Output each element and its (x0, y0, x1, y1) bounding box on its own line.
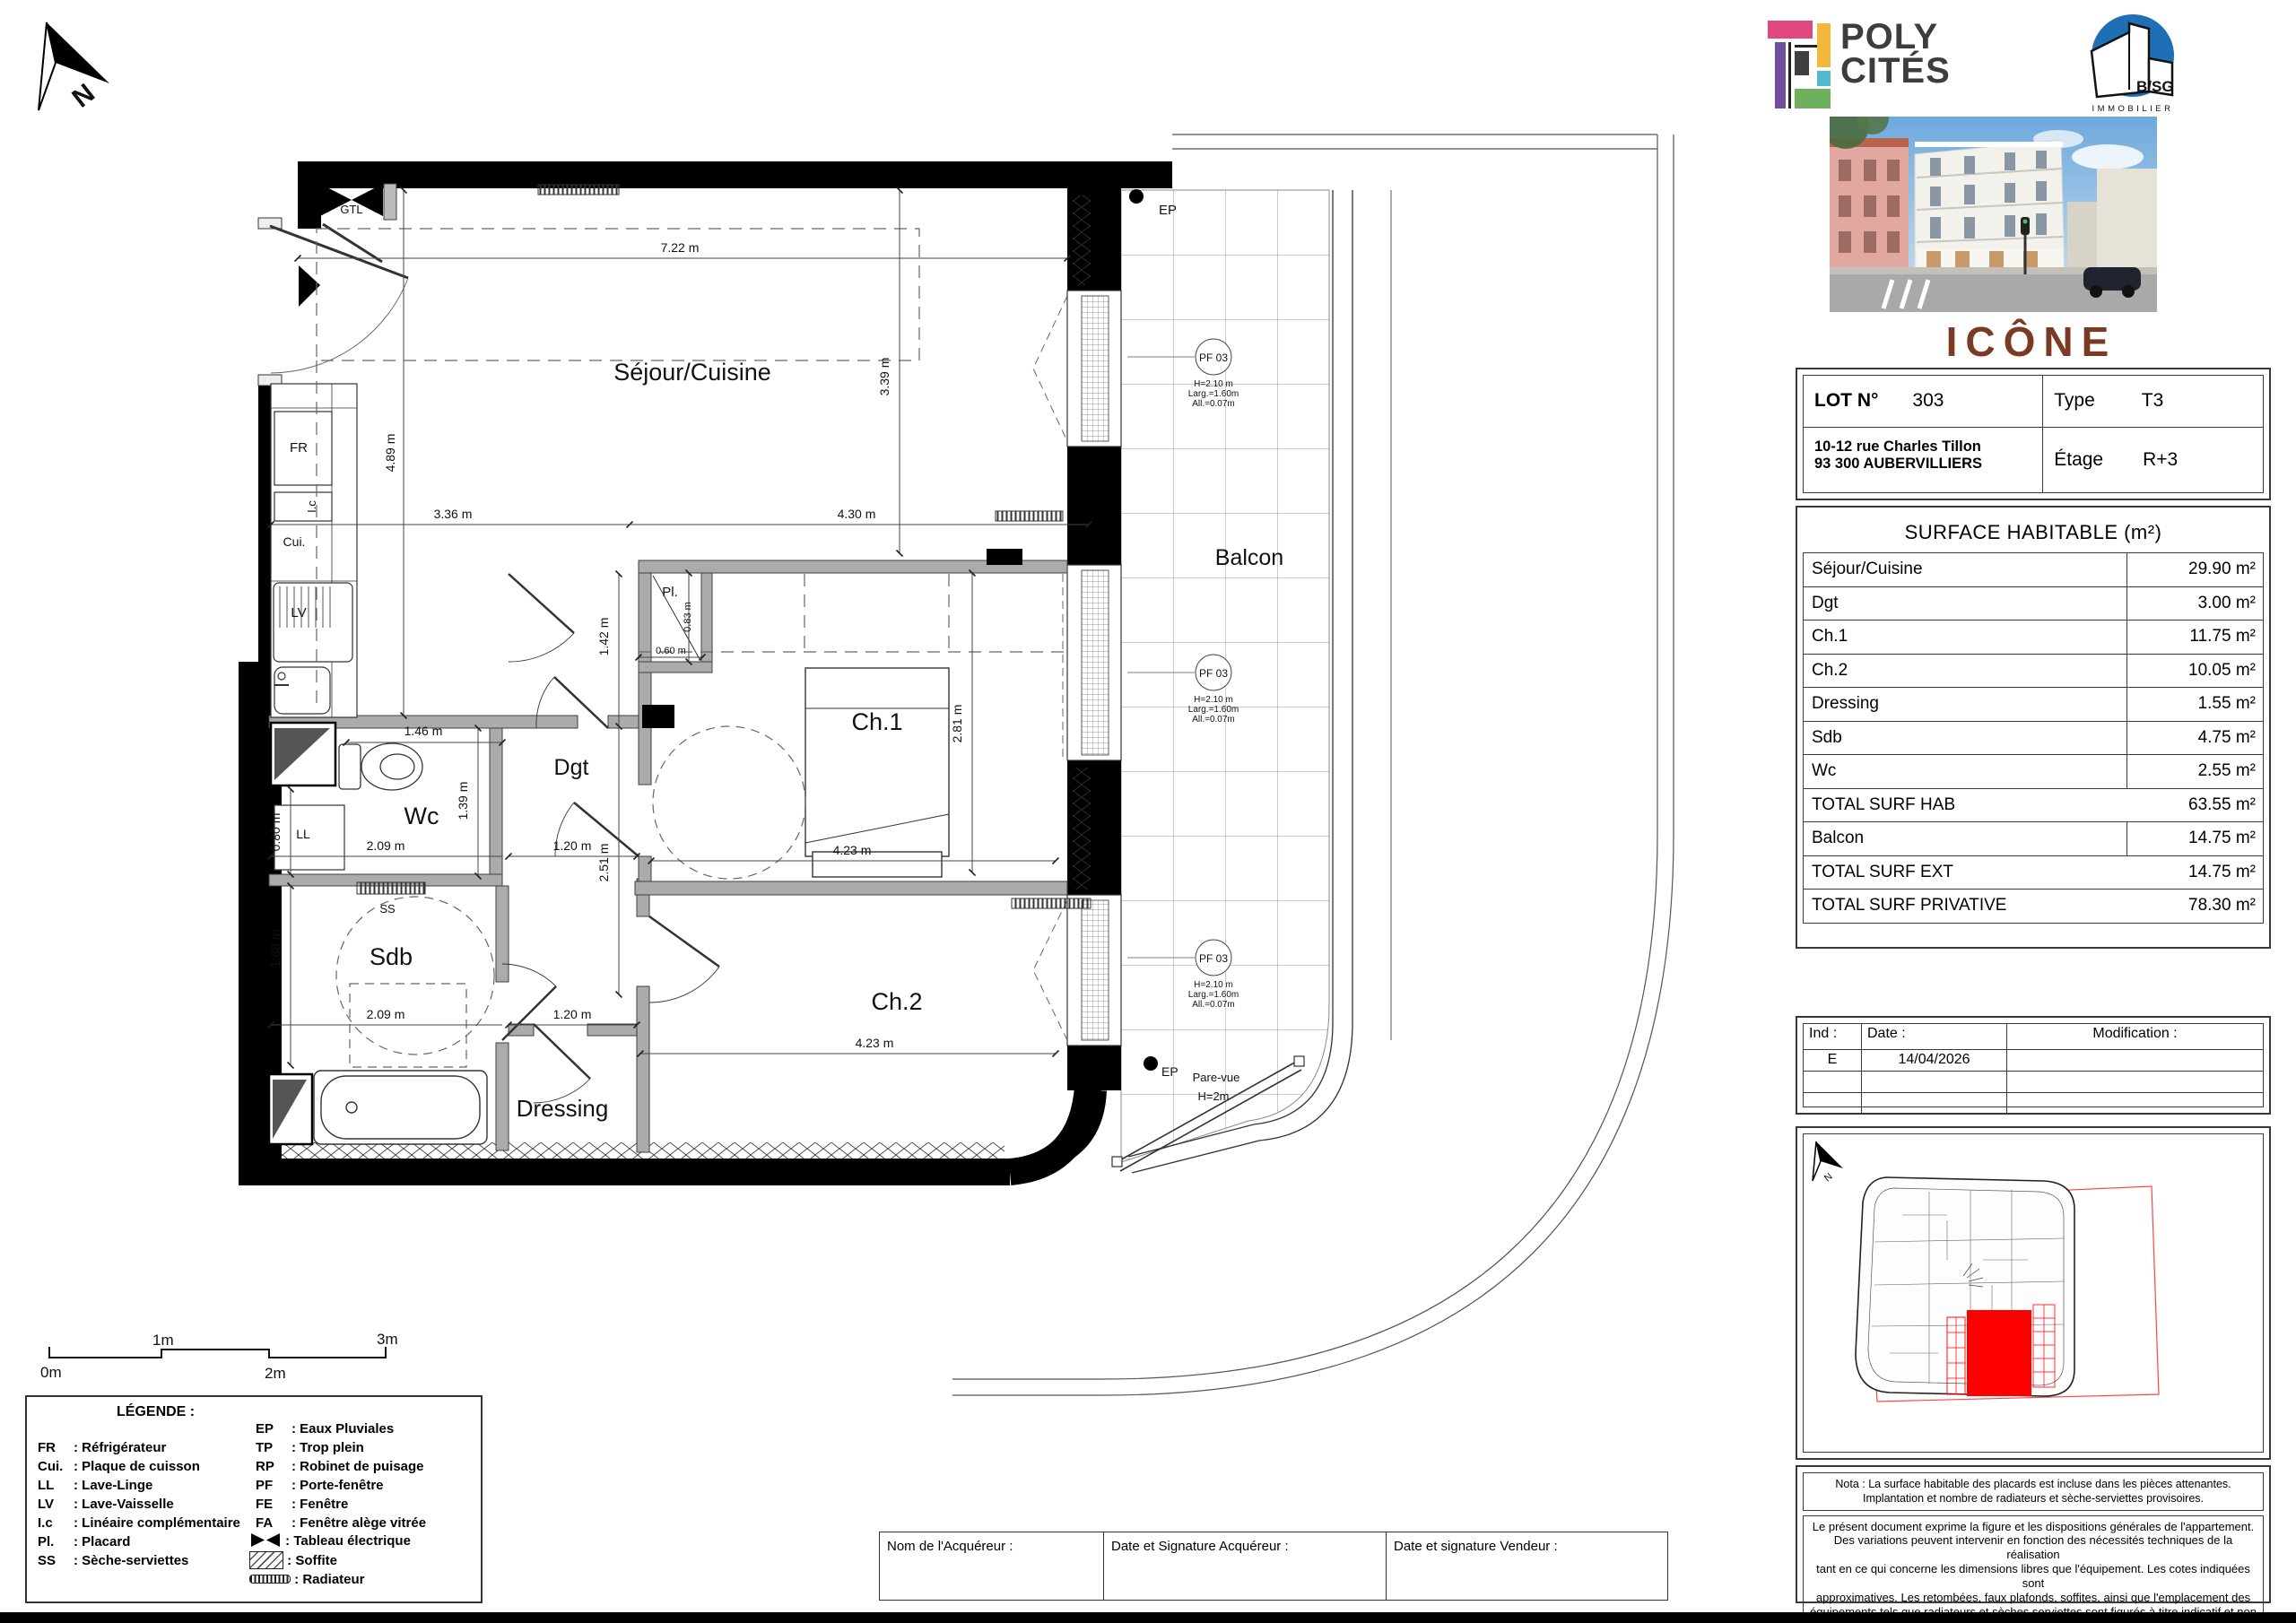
legend-item: RP: Robinet de puisage (256, 1459, 424, 1474)
lot-floor-cell: Étage R+3 (2042, 427, 2263, 493)
svg-text:Larg.=1.60m: Larg.=1.60m (1188, 990, 1239, 1000)
svg-text:4.23 m: 4.23 m (856, 1036, 894, 1050)
room-label-dressing: Dressing (517, 1095, 609, 1122)
svg-text:1.39 m: 1.39 m (456, 782, 470, 820)
legend-item: SS: Sèche-serviettes (38, 1553, 188, 1568)
svg-text:LV: LV (291, 605, 306, 621)
svg-text:3.39 m: 3.39 m (877, 358, 891, 396)
ep-marker-bottom (1144, 1056, 1158, 1071)
legend-item: : Tableau électrique (249, 1532, 411, 1549)
room-label-dgt: Dgt (554, 755, 589, 780)
ep-label-bottom: EP (1161, 1064, 1178, 1079)
site-plan-drawing: N (1804, 1134, 2264, 1443)
revision-cell (2006, 1049, 2263, 1071)
revision-cell (1861, 1092, 2006, 1114)
revision-cell: 14/04/2026 (1861, 1049, 2006, 1071)
legend-title: LÉGENDE : (117, 1404, 195, 1420)
bsg-logo-icon: B/SG IMMOBILIER (2077, 9, 2194, 118)
svg-text:PF 03: PF 03 (1199, 352, 1228, 364)
lot-number-cell: LOT N° 303 (1804, 376, 2042, 427)
revision-cell (1804, 1071, 1861, 1092)
surface-row: Dgt3.00 m² (1804, 586, 2263, 621)
svg-text:2.09 m: 2.09 m (367, 1007, 405, 1021)
legend-item: : Soffite (249, 1551, 337, 1569)
nota-text-2: Le présent document exprime la figure et… (1803, 1515, 2264, 1623)
revision-cell (1861, 1071, 2006, 1092)
surface-row: Wc2.55 m² (1804, 754, 2263, 788)
site-north-arrow-icon: N (1813, 1141, 1843, 1185)
balcony (952, 135, 1674, 1395)
svg-text:1m: 1m (152, 1332, 174, 1349)
soffit-hatch-icon (249, 1551, 283, 1569)
exterior-walls (239, 161, 1172, 1185)
svg-text:1.68 m: 1.68 m (268, 930, 283, 968)
soffit-dashed-lines (317, 229, 1065, 1067)
revision-header: Ind : (1804, 1024, 1861, 1049)
surface-row-total: TOTAL SURF HAB63.55 m² (1804, 788, 2263, 822)
bed (805, 668, 949, 877)
surface-row: Ch.210.05 m² (1804, 654, 2263, 688)
svg-text:Cui.: Cui. (283, 534, 306, 549)
lot-address-cell: 10-12 rue Charles Tillon 93 300 AUBERVIL… (1804, 427, 2042, 493)
svg-text:3.36 m: 3.36 m (434, 507, 473, 521)
svg-text:Larg.=1.60m: Larg.=1.60m (1188, 389, 1239, 399)
revision-header: Date : (1861, 1024, 2006, 1049)
svg-text:IMMOBILIER: IMMOBILIER (2092, 104, 2174, 114)
legend-item: FE: Fenêtre (256, 1497, 348, 1512)
buyer-signature-cell: Date et Signature Acquéreur : (1104, 1532, 1387, 1600)
legend-item: FA: Fenêtre alège vitrée (256, 1515, 426, 1531)
svg-text:All.=0.07m: All.=0.07m (1192, 399, 1235, 409)
svg-text:Pare-vue: Pare-vue (1193, 1071, 1240, 1084)
legend-item: FR: Réfrigérateur (38, 1440, 166, 1455)
svg-text:1.46 m: 1.46 m (404, 724, 443, 738)
revision-cell (1804, 1092, 1861, 1114)
surface-row-total: TOTAL SURF EXT14.75 m² (1804, 855, 2263, 890)
ep-label-top: EP (1159, 203, 1177, 218)
entrance-door (270, 224, 408, 373)
room-label-sejour: Séjour/Cuisine (613, 359, 771, 386)
svg-text:B/SG: B/SG (2136, 78, 2174, 95)
windows (1033, 291, 1121, 1046)
svg-text:H=2.10 m: H=2.10 m (1194, 379, 1233, 389)
svg-text:1.20 m: 1.20 m (553, 1007, 592, 1021)
legend-item: I.c: Linéaire complémentaire (38, 1515, 240, 1531)
project-name: ICÔNE (1792, 317, 2271, 366)
svg-text:2.51 m: 2.51 m (596, 844, 611, 882)
scale-bar: 0m 1m 2m 3m (40, 1331, 398, 1382)
floor-plan: N (0, 0, 1785, 1399)
north-arrow-icon: N (39, 22, 109, 114)
sheet-bottom-border (0, 1612, 2296, 1623)
svg-text:I.c: I.c (305, 500, 318, 513)
lot-type-cell: Type T3 (2042, 376, 2263, 427)
room-label-balcon: Balcon (1215, 545, 1283, 570)
svg-text:PF 03: PF 03 (1199, 952, 1228, 965)
ep-marker-top (1129, 189, 1144, 204)
svg-text:H=2.10 m: H=2.10 m (1194, 695, 1233, 705)
legend-item: : Radiateur (249, 1572, 365, 1587)
surface-row: Ch.111.75 m² (1804, 620, 2263, 654)
svg-text:2m: 2m (265, 1365, 286, 1382)
signature-block: Nom de l'Acquéreur : Date et Signature A… (879, 1532, 1668, 1601)
revision-cell (2006, 1071, 2263, 1092)
nota-text-1: Nota : La surface habitable des placards… (1803, 1472, 2264, 1511)
svg-text:0m: 0m (40, 1364, 62, 1381)
polycites-wordmark: POLY CITÉS (1840, 20, 1951, 88)
svg-text:N: N (1822, 1171, 1835, 1184)
legend-item: EP: Eaux Pluviales (256, 1421, 394, 1436)
nota-block: Nota : La surface habitable des placards… (1796, 1465, 2271, 1603)
seller-signature-cell: Date et signature Vendeur : (1387, 1532, 1667, 1600)
svg-text:Pl.: Pl. (662, 585, 678, 600)
bsg-logo: B/SG IMMOBILIER (2077, 9, 2194, 123)
svg-text:4.23 m: 4.23 m (833, 843, 872, 857)
svg-text:1.42 m: 1.42 m (596, 618, 611, 656)
legend-item: LL: Lave-Linge (38, 1478, 152, 1493)
surface-row: Sdb4.75 m² (1804, 721, 2263, 755)
radiator-icon (249, 1575, 291, 1584)
room-label-ch1: Ch.1 (851, 708, 902, 735)
legend-box: LÉGENDE : FR: Réfrigérateur Cui.: Plaque… (25, 1395, 483, 1603)
surface-row: Dressing1.55 m² (1804, 687, 2263, 721)
svg-text:Larg.=1.60m: Larg.=1.60m (1188, 705, 1239, 715)
polycites-logo (1768, 18, 1850, 116)
polycites-logo-icon (1768, 18, 1850, 111)
svg-text:1.20 m: 1.20 m (553, 838, 592, 853)
room-label-sdb: Sdb (370, 943, 413, 970)
toilet (339, 743, 422, 790)
surface-row: Séjour/Cuisine29.90 m² (1804, 552, 2263, 586)
svg-text:2.81 m: 2.81 m (950, 705, 964, 743)
svg-text:H=2.10 m: H=2.10 m (1194, 980, 1233, 990)
site-plan: N (1796, 1126, 2271, 1460)
surface-table: SURFACE HABITABLE (m²) Séjour/Cuisine29.… (1796, 506, 2271, 949)
room-label-wc: Wc (404, 803, 439, 829)
surface-row: Balcon14.75 m² (1804, 821, 2263, 855)
svg-text:All.=0.07m: All.=0.07m (1192, 1000, 1235, 1010)
legend-item: LV: Lave-Vaisselle (38, 1497, 174, 1512)
legend-item: TP: Trop plein (256, 1440, 364, 1455)
room-label-ch2: Ch.2 (871, 988, 922, 1015)
svg-text:All.=0.07m: All.=0.07m (1192, 715, 1235, 725)
legend-item: PF: Porte-fenêtre (256, 1478, 384, 1493)
svg-text:LL: LL (296, 827, 310, 841)
building-photo (1830, 117, 2157, 317)
buyer-name-cell: Nom de l'Acquéreur : (880, 1532, 1104, 1600)
lot-table: LOT N° 303 Type T3 10-12 rue Charles Til… (1796, 368, 2271, 500)
svg-text:2.09 m: 2.09 m (367, 838, 405, 853)
bathtub (314, 1071, 487, 1144)
surface-table-title: SURFACE HABITABLE (m²) (1803, 513, 2264, 552)
svg-text:4.89 m: 4.89 m (383, 434, 397, 473)
svg-text:7.22 m: 7.22 m (661, 240, 700, 255)
revision-table: Ind : Date : Modification : E 14/04/2026 (1796, 1016, 2271, 1115)
revision-cell: E (1804, 1049, 1861, 1071)
north-label: N (66, 78, 100, 113)
svg-text:4.30 m: 4.30 m (838, 507, 876, 521)
svg-text:FR: FR (290, 440, 308, 456)
svg-text:PF 03: PF 03 (1199, 667, 1228, 680)
revision-cell (2006, 1092, 2263, 1114)
kitchen-counter (271, 384, 357, 717)
svg-text:0.60 m: 0.60 m (656, 646, 686, 656)
svg-text:GTL: GTL (340, 203, 362, 216)
svg-text:0.83 m: 0.83 m (683, 602, 693, 632)
surface-row-total: TOTAL SURF PRIVATIVE78.30 m² (1804, 889, 2263, 923)
svg-text:3m: 3m (377, 1331, 398, 1348)
legend-item: Cui.: Plaque de cuisson (38, 1459, 200, 1474)
electrical-panel-icon (249, 1532, 282, 1548)
revision-header: Modification : (2006, 1024, 2263, 1049)
svg-text:SS: SS (379, 902, 396, 916)
svg-text:H=2m: H=2m (1197, 1089, 1229, 1103)
drawing-sheet: N (0, 0, 2296, 1623)
towel-radiator (357, 882, 425, 894)
svg-text:0.80 m: 0.80 m (268, 813, 283, 852)
legend-item: Pl.: Placard (38, 1534, 130, 1549)
dimension-lines (271, 190, 1089, 1065)
